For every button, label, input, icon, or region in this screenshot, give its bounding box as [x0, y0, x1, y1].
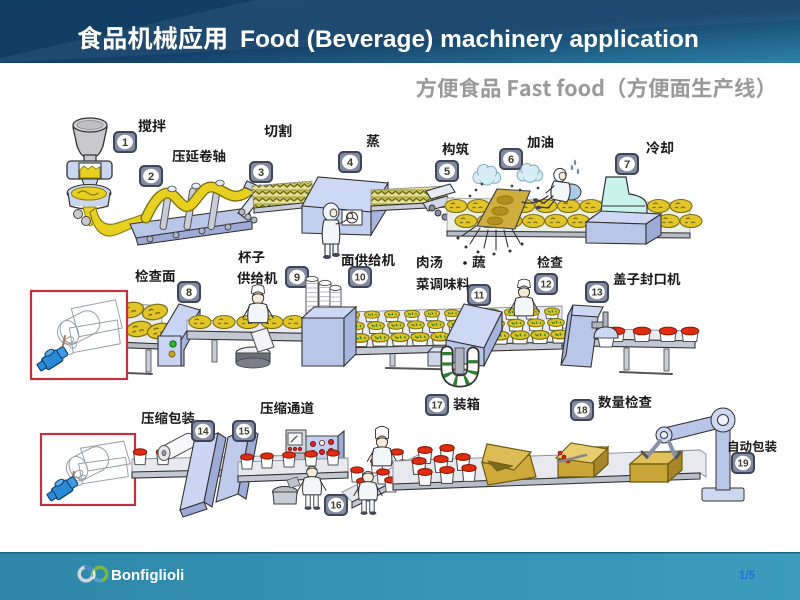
svg-text:18: 18: [576, 406, 588, 417]
svg-text:12: 12: [540, 280, 552, 291]
svg-text:8: 8: [186, 287, 192, 299]
svg-text:15: 15: [238, 427, 250, 438]
svg-text:11: 11: [474, 291, 485, 302]
svg-text:1: 1: [122, 137, 128, 149]
svg-text:5: 5: [444, 166, 450, 178]
svg-text:7: 7: [624, 159, 630, 171]
svg-text:4: 4: [347, 157, 354, 169]
svg-text:6: 6: [508, 154, 514, 166]
svg-text:19: 19: [737, 459, 749, 470]
svg-text:10: 10: [354, 273, 366, 284]
svg-text:14: 14: [197, 427, 209, 438]
svg-text:16: 16: [330, 501, 342, 512]
svg-text:13: 13: [591, 288, 603, 299]
svg-text:Food (Beverage) machinery appl: Food (Beverage) machinery application: [240, 26, 699, 53]
svg-text:1/5: 1/5: [739, 570, 756, 582]
svg-text:Bonfiglioli: Bonfiglioli: [111, 567, 184, 584]
svg-text:3: 3: [258, 167, 264, 179]
svg-text:17: 17: [431, 401, 443, 412]
svg-text:9: 9: [294, 272, 300, 284]
svg-text:2: 2: [148, 171, 154, 183]
